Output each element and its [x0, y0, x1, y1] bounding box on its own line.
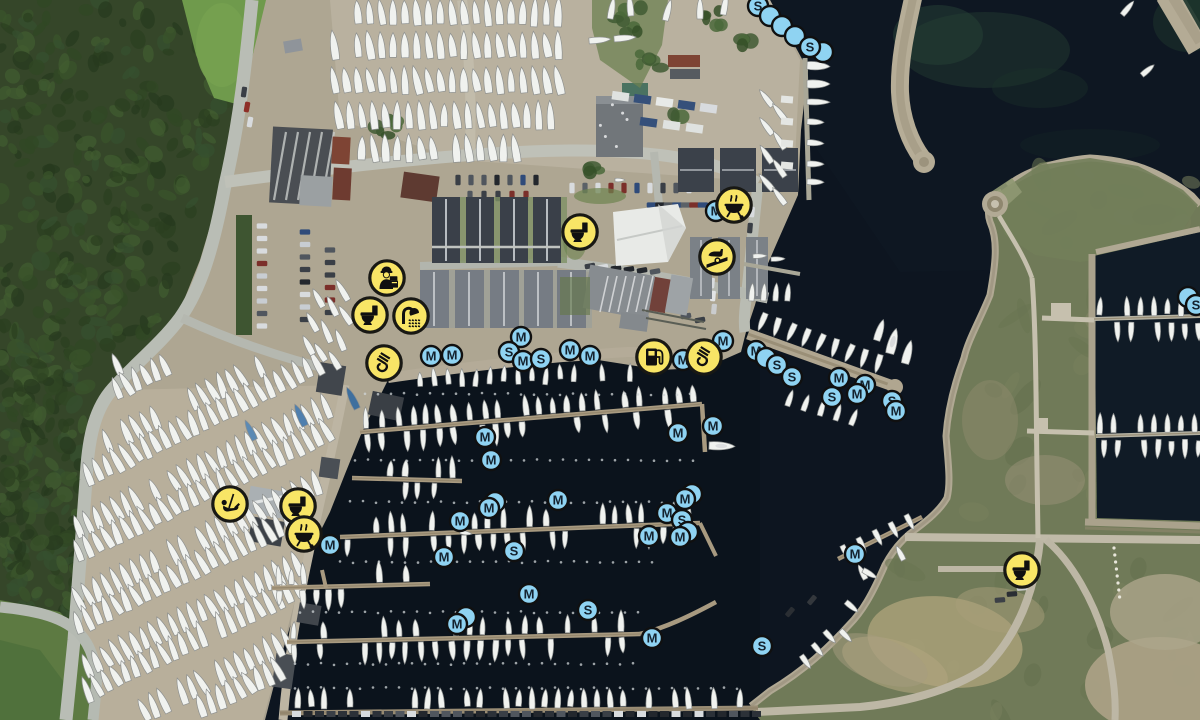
- svg-text:S: S: [788, 369, 797, 384]
- svg-text:M: M: [426, 348, 437, 363]
- svg-text:M: M: [524, 586, 535, 601]
- svg-text:S: S: [828, 389, 837, 404]
- svg-text:M: M: [486, 452, 497, 467]
- svg-text:M: M: [585, 348, 596, 363]
- svg-text:M: M: [675, 529, 686, 544]
- svg-text:M: M: [325, 537, 336, 552]
- svg-text:S: S: [773, 357, 782, 372]
- svg-text:S: S: [584, 602, 593, 617]
- svg-text:M: M: [439, 549, 450, 564]
- svg-text:M: M: [662, 505, 673, 520]
- svg-text:S: S: [510, 543, 519, 558]
- svg-text:S: S: [758, 638, 767, 653]
- svg-text:M: M: [480, 429, 491, 444]
- svg-text:M: M: [565, 342, 576, 357]
- svg-text:M: M: [518, 353, 529, 368]
- svg-text:M: M: [708, 418, 719, 433]
- svg-text:M: M: [455, 513, 466, 528]
- svg-text:M: M: [673, 425, 684, 440]
- svg-text:M: M: [484, 500, 495, 515]
- svg-text:S: S: [537, 351, 546, 366]
- svg-text:M: M: [834, 370, 845, 385]
- svg-text:M: M: [891, 403, 902, 418]
- svg-text:S: S: [505, 344, 514, 359]
- svg-text:M: M: [553, 492, 564, 507]
- svg-text:M: M: [680, 491, 691, 506]
- svg-text:M: M: [852, 386, 863, 401]
- svg-text:S: S: [806, 39, 815, 54]
- svg-text:M: M: [644, 528, 655, 543]
- svg-text:M: M: [850, 546, 861, 561]
- svg-text:M: M: [447, 347, 458, 362]
- svg-text:M: M: [516, 329, 527, 344]
- svg-text:M: M: [452, 616, 463, 631]
- svg-text:M: M: [647, 630, 658, 645]
- svg-text:S: S: [1192, 297, 1200, 312]
